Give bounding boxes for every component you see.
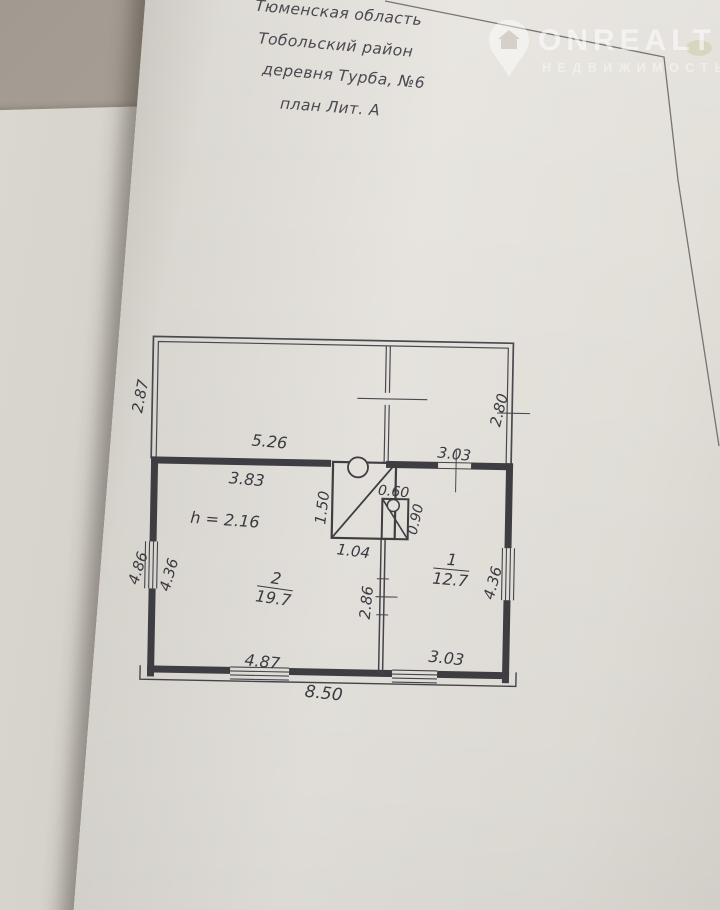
veranda-walls [151,336,532,493]
dim-label-interior-wall: 2.86 [356,585,377,620]
room-2-label: 2 19.7 [254,567,295,610]
dim-label-small-stove-width: 0.60 [377,483,409,502]
interior-wall [374,539,399,674]
room-1-label: 1 12.7 [432,550,471,591]
dim-label-veranda-width: 5.26 [251,431,288,453]
floor-plan: 2.87 5.26 3.03 2.80 3.83 h = 2.16 1.50 0… [136,326,543,714]
watermark: ONREALT НЕДВИЖИМОСТЬ [486,16,720,86]
house-pin-icon [486,18,532,80]
watermark-brand-text: ONREALT [538,24,716,58]
dim-label-total-width: 8.50 [304,682,344,706]
stove-circle [348,457,368,477]
dimension-tick [357,398,427,399]
dim-label-room2-bottom: 4.87 [244,650,281,673]
window-bottom-right [392,670,437,683]
photo-of-floor-plan-document: Тюменская область Тобольский район дерев… [0,0,720,910]
dim-label-room1-bottom: 3.03 [428,647,465,670]
veranda-divider-wall [384,346,390,463]
bottom-wall [147,669,509,676]
dim-label-room2-top: 3.83 [228,468,265,490]
watermark-tagline-text: НЕДВИЖИМОСТЬ [542,61,720,75]
stove-circle [387,499,399,511]
dim-label-veranda-right-width: 3.03 [437,443,472,464]
room-1-area: 12.7 [432,569,469,591]
